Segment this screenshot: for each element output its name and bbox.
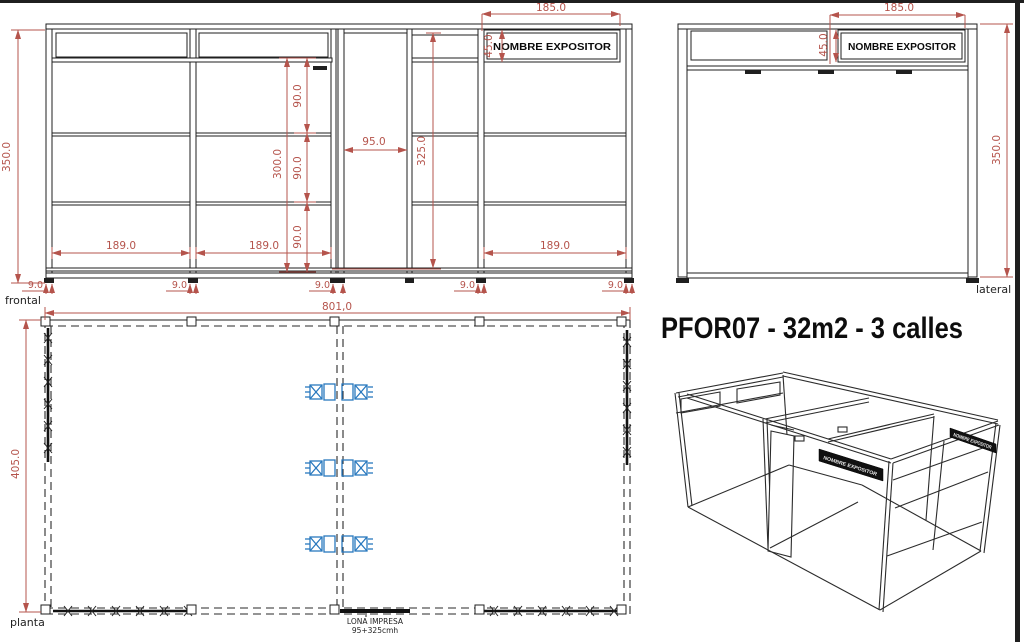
frontal-view-label: frontal — [5, 294, 41, 307]
drawing-title: PFOR07 - 32m2 - 3 calles — [661, 312, 963, 345]
dim-frontal-sign-height: 45.0 — [483, 34, 495, 57]
svg-text:9.0: 9.0 — [172, 280, 187, 291]
panel-clip — [896, 70, 912, 74]
dim-frontal-panel-2: 90.0 — [292, 156, 304, 179]
panel-clip — [745, 70, 761, 74]
lateral-view-label: lateral — [976, 283, 1011, 296]
post-connectors-plan — [41, 317, 626, 614]
sign-text-lateral: NOMBRE EXPOSITOR — [848, 41, 956, 53]
sign-text-frontal: NOMBRE EXPOSITOR — [493, 41, 611, 53]
svg-text:9.0: 9.0 — [28, 280, 43, 291]
dim-frontal-bay-2: 189.0 — [249, 240, 279, 252]
dim-lateral-sign-height: 45.0 — [818, 33, 830, 56]
isometric-view: NOMBRE EXPOSITOR NOMBRE EXPOSITOR — [675, 372, 1000, 612]
dim-lateral-sign-width: 185.0 — [884, 2, 914, 14]
dim-planta-width: 801,0 — [322, 301, 352, 313]
lona-impresa-note-2: 95+325cmh — [352, 626, 399, 635]
dim-frontal-door-height: 325.0 — [416, 136, 428, 166]
lateral-view: NOMBRE EXPOSITOR — [676, 24, 979, 283]
dim-frontal-bay-3: 189.0 — [540, 240, 570, 252]
dim-frontal-bay-1: 189.0 — [106, 240, 136, 252]
dim-frontal-panel-3: 90.0 — [292, 225, 304, 248]
dim-frontal-total-height: 350.0 — [1, 142, 13, 172]
dim-frontal-posts: 9.0 9.0 9.0 9.0 9.0 — [22, 280, 632, 294]
technical-drawing-sheet: NOMBRE EXPOSITOR 350.0 185.0 45.0 — [0, 0, 1024, 642]
panel-clip — [313, 66, 327, 70]
dim-frontal-wall-height: 300.0 — [272, 149, 284, 179]
planta-view-label: planta — [10, 616, 45, 629]
expositor-sign-lateral: NOMBRE EXPOSITOR — [838, 30, 965, 62]
dim-frontal-panel-1: 90.0 — [292, 84, 304, 107]
dim-frontal-door-width: 95.0 — [362, 136, 385, 148]
expositor-sign-frontal: NOMBRE EXPOSITOR — [484, 30, 620, 62]
svg-text:9.0: 9.0 — [460, 280, 475, 291]
lona-impresa-note-1: LONA IMPRESA — [347, 617, 404, 626]
dim-planta-depth: 405.0 — [10, 449, 22, 479]
dim-lateral-total-height: 350.0 — [991, 135, 1003, 165]
svg-text:9.0: 9.0 — [608, 280, 623, 291]
panel-clip — [818, 70, 834, 74]
dim-frontal-sign-width: 185.0 — [536, 2, 566, 14]
planta-view: LONA IMPRESA 95+325cmh — [41, 317, 631, 635]
planta-dimensions: 801,0 405.0 planta — [10, 301, 630, 629]
svg-text:9.0: 9.0 — [315, 280, 330, 291]
